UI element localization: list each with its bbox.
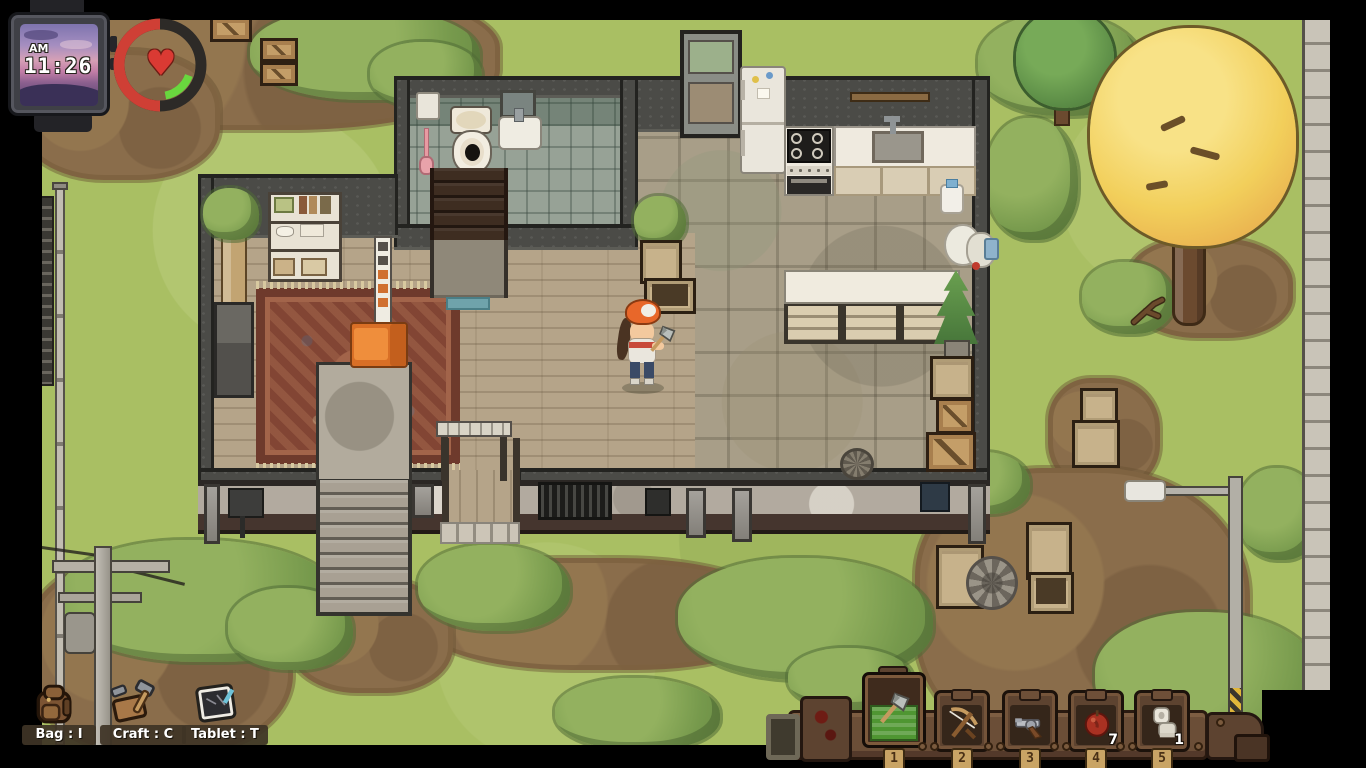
game-screen: AM 11:26 ♥ Bag : I Craft : C Tablet : T <box>0 0 1366 768</box>
fridge-note <box>757 88 770 99</box>
slot-number-tag: 1 <box>883 748 905 768</box>
boundary-wall <box>1302 18 1330 748</box>
lamp-head <box>1124 480 1166 502</box>
table-slats <box>788 306 838 340</box>
branch-item <box>1128 292 1168 328</box>
wooden-crate <box>260 38 298 62</box>
fridge-magnet <box>752 76 759 83</box>
belt-rivet <box>1116 742 1125 751</box>
watch-time: 11:26 <box>24 54 94 78</box>
shelf-box <box>274 197 294 213</box>
tablet-icon <box>188 680 244 728</box>
craft-icon <box>106 678 164 728</box>
bag-label[interactable]: Bag : I <box>22 725 96 745</box>
dining-table-top <box>784 270 960 304</box>
character-shoe <box>630 378 640 385</box>
ladder <box>40 196 54 386</box>
sofa-back <box>390 324 406 366</box>
toilet-lid <box>456 111 486 129</box>
tablet-button[interactable] <box>188 680 244 728</box>
book <box>320 196 331 214</box>
interior-stairs <box>430 168 508 242</box>
toilet-paper-holder <box>416 92 440 120</box>
door-post <box>513 438 520 526</box>
radio-mast <box>55 188 65 746</box>
cardboard-box <box>1072 420 1120 468</box>
craft-button[interactable] <box>106 678 164 728</box>
foundation-pillar <box>732 488 752 542</box>
pouch-flap <box>1151 689 1173 701</box>
hotbar-slot-2[interactable] <box>934 690 990 752</box>
crate-plant <box>634 196 686 246</box>
wooden-crate <box>926 432 976 472</box>
health-indicator: ♥ <box>108 12 212 118</box>
stairwell-landing <box>430 240 508 298</box>
burner <box>791 148 802 159</box>
exterior-stairs <box>316 480 412 616</box>
trash-bottle <box>984 238 999 260</box>
watch-screen: AM 11:26 <box>20 24 98 106</box>
wooden-crate <box>936 398 974 434</box>
slot-number-tag: 5 <box>1151 748 1173 768</box>
autumn-tree-canopy <box>1090 28 1296 246</box>
hotbar-slot-3[interactable] <box>1002 690 1058 752</box>
fridge-handle <box>741 130 745 156</box>
belt-rivet <box>930 742 939 751</box>
cardboard-box <box>1080 388 1118 424</box>
meter-pipe <box>240 516 245 538</box>
burner <box>812 133 823 144</box>
rack-item <box>378 242 388 251</box>
belt-tail <box>1234 734 1270 762</box>
book <box>299 196 307 214</box>
character-shoe <box>644 378 654 385</box>
bush <box>986 118 1078 240</box>
belt-rivet <box>996 742 1005 751</box>
watch: AM 11:26 <box>6 0 116 134</box>
cabinet <box>214 302 254 398</box>
character-shadow <box>622 382 664 394</box>
shelf-crate <box>301 258 327 276</box>
held-axe-icon <box>646 320 680 356</box>
glass-pane <box>688 40 734 74</box>
rack-item <box>378 284 388 293</box>
belt-buckle <box>766 714 800 760</box>
breaker-box <box>920 482 950 512</box>
revolver-icon <box>1011 705 1051 745</box>
cloud <box>24 30 58 40</box>
rack-item <box>378 298 388 307</box>
hotbar-slot-5[interactable]: 1 <box>1134 690 1190 752</box>
heart-icon: ♥ <box>141 44 181 84</box>
fridge-magnet <box>766 72 773 79</box>
shelf-dish <box>276 226 294 237</box>
foundation-pillar <box>686 488 706 538</box>
burner <box>812 148 823 159</box>
utility-box <box>645 488 671 516</box>
planter-plant <box>203 188 259 240</box>
lamp-arm <box>1160 486 1238 496</box>
trash-item <box>972 262 980 270</box>
sink-faucet-neck <box>890 120 896 134</box>
faucet <box>514 108 524 122</box>
crossbow-icon <box>943 703 983 743</box>
wooden-crate <box>260 62 298 86</box>
bag-button[interactable] <box>28 682 82 728</box>
hatchet-icon <box>875 687 915 727</box>
belt-rivet <box>1216 718 1225 727</box>
table-leg <box>500 437 507 481</box>
backpack-icon <box>28 682 82 728</box>
belt-rivet <box>984 742 993 751</box>
hotbar-slot-1[interactable] <box>862 672 926 748</box>
oven-handle <box>791 179 827 183</box>
mast-cap <box>52 182 68 190</box>
slot-number-tag: 2 <box>951 748 973 768</box>
table-leg <box>441 437 448 481</box>
foundation-pillar <box>412 484 434 518</box>
fridge-divider <box>742 122 784 125</box>
belt-rivet <box>1050 742 1059 751</box>
glass-pane-lower <box>688 82 734 124</box>
stove-controls <box>787 166 831 175</box>
door-mat <box>446 297 490 310</box>
book <box>309 196 317 214</box>
sofa-seat <box>354 328 388 360</box>
treeline <box>20 84 98 106</box>
foundation-pillar <box>968 484 986 544</box>
craft-label[interactable]: Craft : C <box>100 725 186 745</box>
slot-count: 1 <box>1174 732 1184 748</box>
bush <box>418 545 570 631</box>
slot-number-tag: 3 <box>1019 748 1041 768</box>
fridge-handle <box>741 80 745 100</box>
jug-cap <box>946 179 958 188</box>
transformer <box>64 612 96 654</box>
water-jug <box>940 184 964 214</box>
belt-rivet <box>918 742 927 751</box>
fridge <box>740 66 786 174</box>
table-slats <box>846 306 896 340</box>
slot-number-tag: 4 <box>1085 748 1107 768</box>
kitchen-sink <box>872 131 924 163</box>
hotbar-slot-4[interactable]: 7 <box>1068 690 1124 752</box>
foundation-pillar <box>204 484 220 544</box>
belt-rivet <box>1194 742 1203 751</box>
tablet-label[interactable]: Tablet : T <box>182 725 268 745</box>
hotbar: 7 1 1 2 3 4 5 <box>756 656 1296 768</box>
shelf-crate <box>273 258 295 276</box>
rack-item <box>378 256 388 265</box>
entry-step <box>440 522 520 544</box>
bush <box>555 678 720 750</box>
open-box-inside <box>1036 578 1066 604</box>
pouch-flap <box>951 689 973 701</box>
burner <box>791 133 802 144</box>
rack-item <box>378 270 388 279</box>
metal-grate <box>538 482 612 520</box>
belt-pad <box>800 696 852 762</box>
belt-rivet <box>1062 742 1071 751</box>
electric-meter <box>228 488 264 518</box>
pouch-flap <box>1019 689 1041 701</box>
console-table <box>436 421 512 437</box>
stair-landing <box>316 362 412 482</box>
cap-patch <box>641 304 656 317</box>
belt-rivet <box>1128 742 1137 751</box>
cloud <box>60 40 92 49</box>
floor-drain <box>840 448 874 480</box>
toilet-hole <box>465 144 480 161</box>
cable-spool <box>966 556 1018 610</box>
cardboard-box <box>930 356 974 400</box>
pouch-flap <box>1085 689 1107 701</box>
player-character <box>616 296 680 396</box>
letterbox-right <box>1330 0 1366 768</box>
shelf-papers <box>300 224 324 237</box>
towel-bar <box>850 92 930 102</box>
